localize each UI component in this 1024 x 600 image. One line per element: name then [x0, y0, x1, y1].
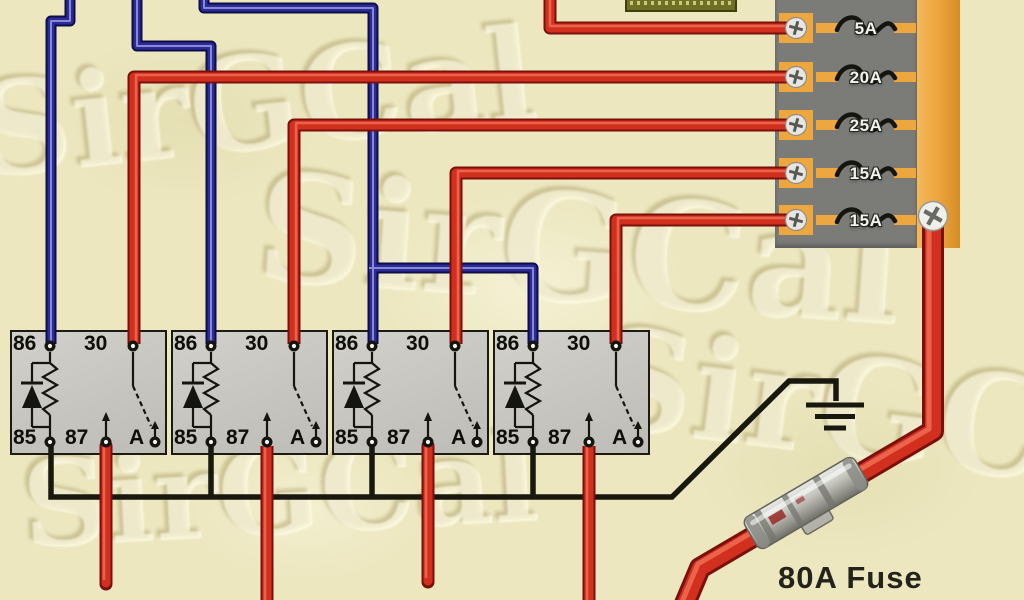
- wiring-layer: [0, 0, 1024, 600]
- relay4-terminal-A-label: A: [612, 426, 627, 450]
- relay3-terminal-A-label: A: [451, 426, 466, 450]
- relay2-terminal-87-label: 87: [226, 426, 249, 450]
- relay1-terminal-85-label: 85: [13, 426, 36, 450]
- fuse-rating-15a-2: 15A: [834, 211, 898, 231]
- relay2-terminal-A-label: A: [290, 426, 305, 450]
- relay2-terminal-85-label: 85: [174, 426, 197, 450]
- fuse-rating-25a: 25A: [834, 116, 898, 136]
- wiring-diagram-canvas: SirGCal SirGCal SirGCal SirGCal: [0, 0, 1024, 600]
- relay4-terminal-87-label: 87: [548, 426, 571, 450]
- relay3-terminal-30-label: 30: [406, 332, 429, 356]
- ground-symbol: [806, 405, 864, 428]
- relay4-terminal-30-label: 30: [567, 332, 590, 356]
- relay4-terminal-86-label: 86: [496, 332, 519, 356]
- relay3-terminal-87-label: 87: [387, 426, 410, 450]
- fuse-rating-15a: 15A: [834, 164, 898, 184]
- relay4-terminal-85-label: 85: [496, 426, 519, 450]
- ground-bus: [51, 381, 836, 497]
- fuse-rating-20a: 20A: [834, 68, 898, 88]
- main-fuse-label: 80A Fuse: [778, 560, 923, 596]
- relay2-terminal-30-label: 30: [245, 332, 268, 356]
- relay1-terminal-87-label: 87: [65, 426, 88, 450]
- relay1-terminal-30-label: 30: [84, 332, 107, 356]
- relay3-terminal-85-label: 85: [335, 426, 358, 450]
- relay2-terminal-86-label: 86: [174, 332, 197, 356]
- relay3-terminal-86-label: 86: [335, 332, 358, 356]
- relay1-terminal-A-label: A: [129, 426, 144, 450]
- relay1-terminal-86-label: 86: [13, 332, 36, 356]
- inline-fuse-holder: [742, 455, 876, 560]
- battery-feed-screw: [913, 196, 953, 236]
- fuse-rating-5a: 5A: [834, 19, 898, 39]
